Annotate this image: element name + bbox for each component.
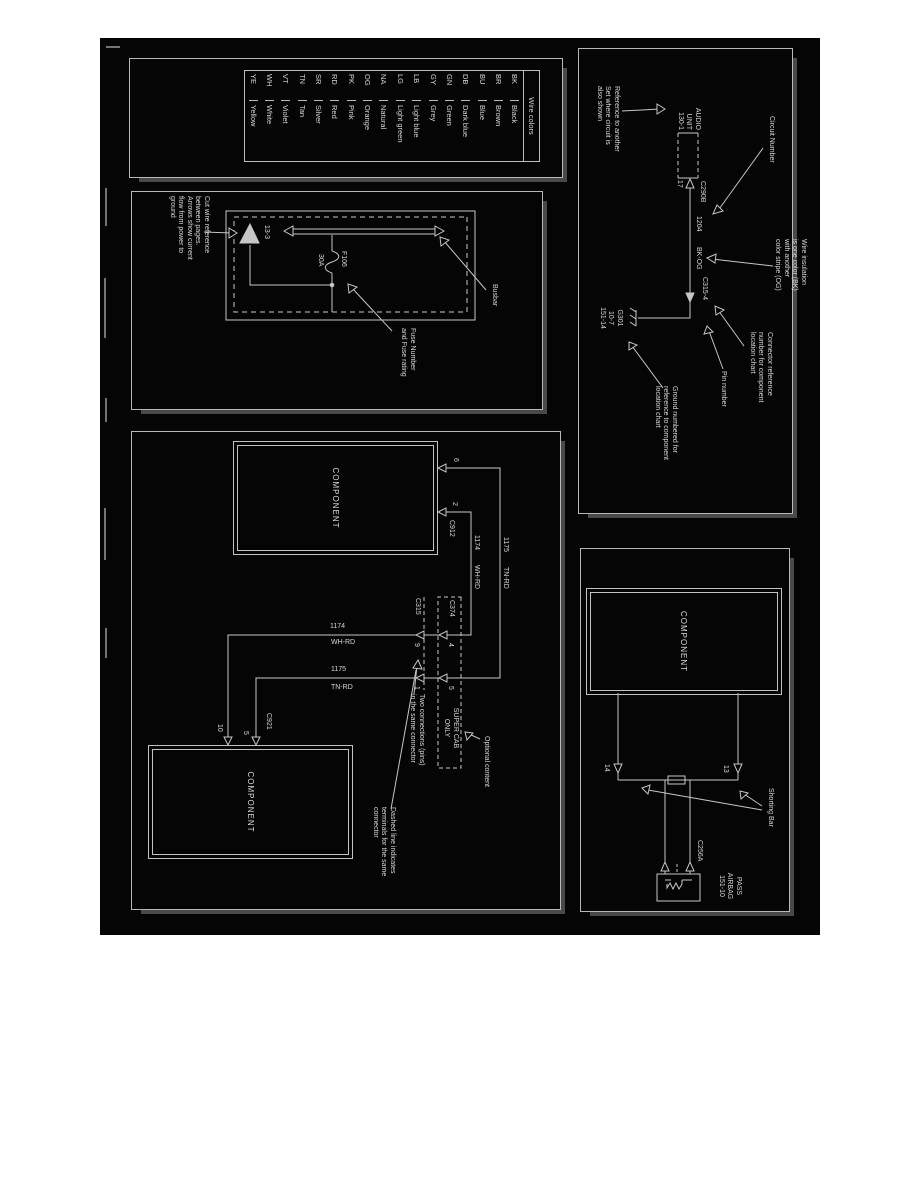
pin-1: 1	[412, 686, 421, 690]
wire-whrd: WH-RD	[472, 565, 481, 589]
wire-color-name: Yellow	[249, 100, 258, 161]
wire-1175: 1175	[501, 537, 510, 552]
wire-colors-table: Wire colors BKBlackBRBrownBUBlueDBDark b…	[244, 70, 540, 162]
wire-colors-rows: BKBlackBRBrownBUBlueDBDark blueGNGreenGY…	[245, 71, 523, 161]
table-row: OGOrange	[359, 71, 375, 161]
pin-6: 6	[451, 458, 460, 462]
pin-arrow	[686, 179, 694, 188]
busbar-symbol	[284, 226, 444, 236]
two-connections-note: Two connections (pins) in the same conne…	[408, 694, 425, 766]
pin-4: 4	[446, 643, 455, 647]
wire-color-name: Black	[510, 100, 519, 161]
connector-c315: C315	[413, 598, 422, 615]
squib-symbol	[665, 880, 692, 889]
wire-1174-vertical: 1174	[330, 623, 345, 630]
connector-c374: C374	[447, 600, 456, 617]
fuse-symbol	[325, 251, 339, 273]
wire-color-name: Violet	[281, 100, 290, 161]
component-box-2: COMPONENT	[148, 745, 353, 859]
wire-color-name: Green	[445, 100, 454, 161]
reference-note: Reference to another Set where circuit i…	[595, 86, 621, 152]
wire-color-code: SR	[314, 71, 323, 100]
fuse-example-lines	[204, 211, 486, 331]
wire-tnrd: TN-RD	[501, 567, 510, 589]
page-ref-13-3: 13-3	[262, 225, 271, 239]
wire-color-code: RD	[330, 71, 339, 100]
wire-color-code: TN	[298, 71, 307, 100]
table-row: RDRed	[327, 71, 343, 161]
wire-colors-header: Wire colors	[523, 71, 539, 161]
wire-color-name: Orange	[363, 100, 372, 161]
connector-c290b: C290B	[698, 181, 707, 202]
connector-c912: C912	[447, 520, 456, 537]
wire-whrd-vertical: WH-RD	[331, 639, 355, 646]
wire-color-name: Light blue	[412, 100, 421, 161]
table-row: TNTan	[294, 71, 310, 161]
wire-color-code: BU	[478, 71, 487, 100]
table-row: VTViolet	[278, 71, 294, 161]
table-row: PKPink	[343, 71, 359, 161]
dashed-line-note: Dashed line indicates terminals for the …	[371, 807, 397, 876]
wire-1175-vertical: 1175	[331, 666, 346, 673]
table-row: BRBrown	[490, 71, 506, 161]
wire-color-name: Dark blue	[461, 100, 470, 161]
wire-color-name: Light green	[396, 100, 405, 161]
wire-color-name: Brown	[494, 100, 503, 161]
component-1-label: COMPONENT	[331, 468, 340, 529]
wire-color-code: NA	[379, 71, 388, 100]
component-3-label: COMPONENT	[680, 611, 689, 672]
wire-color-code: GN	[445, 71, 454, 100]
wire-color-code: LB	[412, 71, 421, 100]
wire-color-code: VT	[281, 71, 290, 100]
connector-note: Connector reference number for component…	[748, 332, 774, 402]
component-box-3: COMPONENT	[586, 588, 782, 695]
component-2-label: COMPONENT	[246, 772, 255, 833]
wire-color-code: PK	[347, 71, 356, 100]
wire-1174: 1174	[472, 535, 481, 550]
fuse-id: F106	[339, 251, 348, 267]
fuse-rating: 30A	[316, 254, 325, 266]
wire-color-code: WH	[265, 71, 274, 100]
ground-id: G301 10-7 151-14	[598, 298, 624, 338]
cut-wire-note: Cut wire reference between pages. Arrows…	[168, 196, 211, 260]
wire-color-code: BK	[510, 71, 519, 100]
wire-color-code: OG	[363, 71, 372, 100]
connector-c315-4: C315-4	[700, 277, 709, 300]
ground-symbol	[630, 308, 636, 326]
wire-color-code: GY	[429, 71, 438, 100]
table-row: GYGrey	[425, 71, 441, 161]
table-row: LGLight green	[392, 71, 408, 161]
wire-color-name: Blue	[478, 100, 487, 161]
table-row: DBDark blue	[458, 71, 474, 161]
pin-number-label: Pin number	[719, 371, 728, 407]
fuse-note: Fuse Number and Fuse rating	[399, 328, 416, 377]
table-row: BKBlack	[507, 71, 523, 161]
table-row: NANatural	[376, 71, 392, 161]
wire-color-code: YE	[249, 71, 258, 100]
scanned-wiring-diagram-page: Wire colors BKBlackBRBrownBUBlueDBDark b…	[0, 0, 918, 1188]
pin-9: 9	[412, 643, 421, 647]
pin-10: 10	[215, 724, 224, 732]
wire-color-name: White	[265, 100, 274, 161]
pin-5: 5	[241, 731, 250, 735]
wire-color-name: Tan	[298, 100, 307, 161]
table-row: BUBlue	[474, 71, 490, 161]
wire-color-code: LG	[396, 71, 405, 100]
wire-color-code: DB	[461, 71, 470, 100]
wire-color-name: Silver	[314, 100, 323, 161]
current-arrow	[686, 293, 694, 302]
insulation-note: Wire insulation is one color (BK) with a…	[773, 239, 807, 291]
scan-black-area: Wire colors BKBlackBRBrownBUBlueDBDark b…	[100, 38, 820, 935]
page-ref-triangle	[240, 224, 259, 243]
wire-color-name: Red	[330, 100, 339, 161]
rotated-diagram-canvas: Wire colors BKBlackBRBrownBUBlueDBDark b…	[100, 38, 820, 935]
table-row: GNGreen	[441, 71, 457, 161]
optional-content-note: Optional content	[482, 736, 491, 787]
circuit-number-label: Circuit Number	[767, 116, 776, 163]
connector-c921: C921	[264, 713, 273, 730]
pin-14: 14	[602, 764, 611, 772]
super-cab-note: SUPER CAB ONLY	[442, 698, 459, 758]
table-row: SRSilver	[310, 71, 326, 161]
wire-color-name: Grey	[429, 100, 438, 161]
table-row: LBLight blue	[408, 71, 424, 161]
pin-5b: 5	[446, 686, 455, 690]
pin-17: 17	[675, 180, 684, 188]
table-row: WHWhite	[261, 71, 277, 161]
table-row: YEYellow	[245, 71, 261, 161]
wire-color-bkog: BK-OG	[694, 247, 703, 270]
pass-airbag-label: PASS AIRBAG 151-10	[717, 866, 743, 906]
pin-2: 2	[450, 502, 459, 506]
ground-note: Ground numbered for reference to compone…	[653, 386, 679, 460]
wire-color-name: Natural	[379, 100, 388, 161]
wire-color-code: BR	[494, 71, 503, 100]
wire-tnrd-vertical: TN-RD	[331, 684, 353, 691]
component-box-1: COMPONENT	[233, 441, 438, 555]
busbar-label: Busbar	[490, 284, 499, 306]
circuit-number-1204: 1204	[694, 216, 703, 232]
connector-c256a: C256A	[695, 840, 704, 861]
shorting-bar-label: Shorting Bar	[766, 788, 775, 827]
pin-13: 13	[721, 765, 730, 773]
audio-unit-label: AUDIO UNIT 130-1	[676, 86, 702, 130]
wire-color-name: Pink	[347, 100, 356, 161]
